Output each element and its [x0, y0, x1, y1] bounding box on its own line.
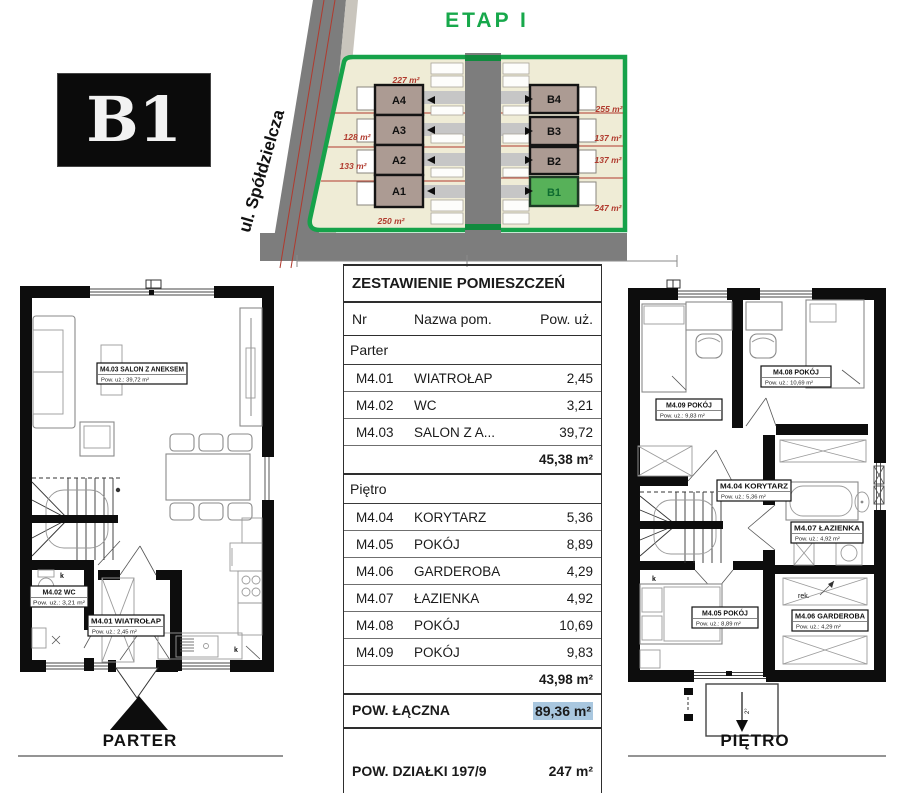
total-row: POW. ŁĄCZNA 89,36 m² — [344, 695, 601, 729]
building-label-b1: B1 — [547, 187, 561, 199]
svg-text:M4.05 POKÓJ: M4.05 POKÓJ — [702, 609, 748, 618]
svg-text:M4.02 WC: M4.02 WC — [42, 590, 75, 597]
sofa — [33, 316, 75, 428]
building-label-b4: B4 — [547, 94, 562, 106]
plot-area-a2: 133 m² — [340, 161, 368, 171]
room-label-wc: M4.02 WC Pow. uż.: 3,21 m² — [30, 586, 88, 607]
table-row: M4.07 ŁAZIENKA 4,92 — [344, 585, 601, 612]
bathtub — [786, 482, 858, 520]
plot-area-b2: 137 m² — [595, 155, 623, 165]
total-label: POW. ŁĄCZNA — [352, 702, 533, 720]
parter-caption: PARTER — [103, 731, 178, 750]
chimney — [146, 280, 161, 288]
central-road — [465, 53, 501, 235]
kitchen-k-label: k — [234, 647, 238, 654]
room-label-salon: M4.03 SALON Z ANEKSEM Pow. uż.: 39,72 m² — [97, 363, 187, 384]
svg-text:Pow. uż.: 2,45 m²: Pow. uż.: 2,45 m² — [92, 630, 137, 636]
tv-unit — [240, 308, 262, 426]
table-row: M4.05 POKÓJ 8,89 — [344, 531, 601, 558]
building-label-a3: A3 — [392, 125, 406, 137]
svg-text:Pow. uż.: 4,92 m²: Pow. uż.: 4,92 m² — [795, 537, 840, 543]
room-label-m408: M4.08 POKÓJ Pow. uż.: 10,69 m² — [761, 366, 831, 387]
unit-badge-label: B1 — [86, 89, 182, 151]
table-row: M4.08 POKÓJ 10,69 — [344, 612, 601, 639]
section-pietro: Piętro — [344, 475, 601, 504]
building-label-a2: A2 — [392, 155, 406, 167]
room-label-m409: M4.09 POKÓJ Pow. uż.: 9,83 m² — [656, 399, 722, 420]
desk-m408 — [746, 302, 782, 358]
svg-text:Pow. uż.: 9,83 m²: Pow. uż.: 9,83 m² — [660, 414, 705, 420]
sink — [176, 636, 218, 657]
plot-value: 247 m² — [549, 763, 593, 779]
svg-text:Pow. uż.: 39,72 m²: Pow. uż.: 39,72 m² — [101, 378, 149, 384]
floor-plan-pietro: k rek. M4.09 POKÓJ Pow. uż.: 9,83 m² M4.… — [628, 278, 886, 760]
svg-text:Pow. uż.: 4,29 m²: Pow. uż.: 4,29 m² — [796, 625, 841, 631]
parter-subtotal: 45,38 m² — [344, 446, 601, 475]
armchair — [80, 422, 114, 456]
entrance-arrow — [110, 668, 168, 730]
table-row: M4.04 KORYTARZ 5,36 — [344, 504, 601, 531]
pietro-caption: PIĘTRO — [720, 731, 789, 750]
svg-text:M4.06 GARDEROBA: M4.06 GARDEROBA — [795, 614, 865, 621]
balcony: 2° — [684, 684, 778, 736]
room-schedule-table: ZESTAWIENIE POMIESZCZEŃ Nr Nazwa pom. Po… — [343, 264, 602, 793]
plot-area-a1: 250 m² — [377, 216, 406, 226]
plot-area-b4: 255 m² — [595, 104, 624, 114]
plot-area-b1: 247 m² — [594, 203, 623, 213]
closet-m409 — [638, 446, 692, 476]
page: { "badge": { "label": "B1" }, "site": { … — [0, 0, 905, 768]
wc-fixtures — [32, 570, 60, 648]
wc-k-label: k — [60, 573, 64, 580]
plot-area-a4: 227 m² — [392, 75, 421, 85]
dining-table — [166, 434, 252, 520]
rek-label: rek. — [798, 593, 810, 600]
table-row: M4.02 WC 3,21 — [344, 392, 601, 419]
room-label-m406: M4.06 GARDEROBA Pow. uż.: 4,29 m² — [792, 610, 868, 631]
slope-label: 2° — [745, 708, 751, 714]
pietro-k-label: k — [652, 576, 656, 583]
site-plan: ETAP I — [240, 0, 905, 272]
plot-area-a3: 128 m² — [344, 132, 372, 142]
col-nr: Nr — [352, 311, 414, 327]
svg-text:M4.03 SALON Z ANEKSEM: M4.03 SALON Z ANEKSEM — [100, 367, 184, 374]
wardrobe-corridor — [780, 440, 866, 462]
building-label-a1: A1 — [392, 186, 406, 198]
svg-text:M4.08 POKÓJ: M4.08 POKÓJ — [773, 368, 819, 377]
nightstand — [640, 650, 660, 668]
svg-text:M4.01 WIATROŁAP: M4.01 WIATROŁAP — [91, 619, 161, 626]
table-title: ZESTAWIENIE POMIESZCZEŃ — [344, 266, 601, 303]
pietro-subtotal: 43,98 m² — [344, 666, 601, 695]
svg-text:Pow. uż.: 8,89 m²: Pow. uż.: 8,89 m² — [696, 622, 741, 628]
room-label-wiatrolap: M4.01 WIATROŁAP Pow. uż.: 2,45 m² — [88, 615, 164, 636]
stove — [238, 571, 262, 603]
building-label-b3: B3 — [547, 126, 561, 138]
floor-plan-parter: k k M4.03 SALON Z ANEKSEM Pow. uż.: 39,7… — [18, 278, 283, 760]
col-name: Nazwa pom. — [414, 311, 525, 327]
sink-drain — [861, 501, 864, 504]
table-row: M4.06 GARDEROBA 4,29 — [344, 558, 601, 585]
unit-badge: B1 — [58, 74, 210, 166]
svg-text:Pow. uż.: 3,21 m²: Pow. uż.: 3,21 m² — [33, 601, 85, 607]
chimney — [667, 280, 680, 288]
svg-text:M4.09 POKÓJ: M4.09 POKÓJ — [666, 401, 712, 410]
plot-row: POW. DZIAŁKI 197/9 247 m² — [344, 755, 601, 793]
svg-text:M4.04 KORYTARZ: M4.04 KORYTARZ — [720, 484, 789, 491]
col-area: Pow. uż. — [525, 311, 593, 327]
table-row: M4.03 SALON Z A... 39,72 — [344, 419, 601, 446]
total-value: 89,36 m² — [533, 702, 593, 720]
rek-arrow — [820, 581, 834, 595]
stairs — [32, 478, 121, 560]
washing-machine — [836, 541, 862, 565]
site-plan-title: ETAP I — [445, 9, 529, 32]
room-label-m407: M4.07 ŁAZIENKA Pow. uż.: 4,92 m² — [791, 522, 863, 543]
room-label-m404: M4.04 KORYTARZ Pow. uż.: 5,36 m² — [717, 480, 791, 501]
table-row: M4.01 WIATROŁAP 2,45 — [344, 365, 601, 392]
svg-text:Pow. uż.: 5,36 m²: Pow. uż.: 5,36 m² — [721, 495, 766, 501]
table-row: M4.09 POKÓJ 9,83 — [344, 639, 601, 666]
plot-area-b3: 137 m² — [595, 133, 623, 143]
building-label-b2: B2 — [547, 156, 561, 168]
bed-m409 — [642, 304, 686, 392]
shower-tray — [794, 541, 814, 565]
table-header: Nr Nazwa pom. Pow. uż. — [344, 303, 601, 336]
desk-m409 — [686, 302, 732, 358]
room-label-m405: M4.05 POKÓJ Pow. uż.: 8,89 m² — [692, 607, 758, 628]
stairs — [640, 492, 728, 563]
building-label-a4: A4 — [392, 95, 407, 107]
svg-text:Pow. uż.: 10,69 m²: Pow. uż.: 10,69 m² — [765, 381, 813, 387]
section-parter: Parter — [344, 336, 601, 365]
plot-label: POW. DZIAŁKI 197/9 — [352, 763, 549, 779]
svg-text:M4.07 ŁAZIENKA: M4.07 ŁAZIENKA — [794, 526, 860, 533]
